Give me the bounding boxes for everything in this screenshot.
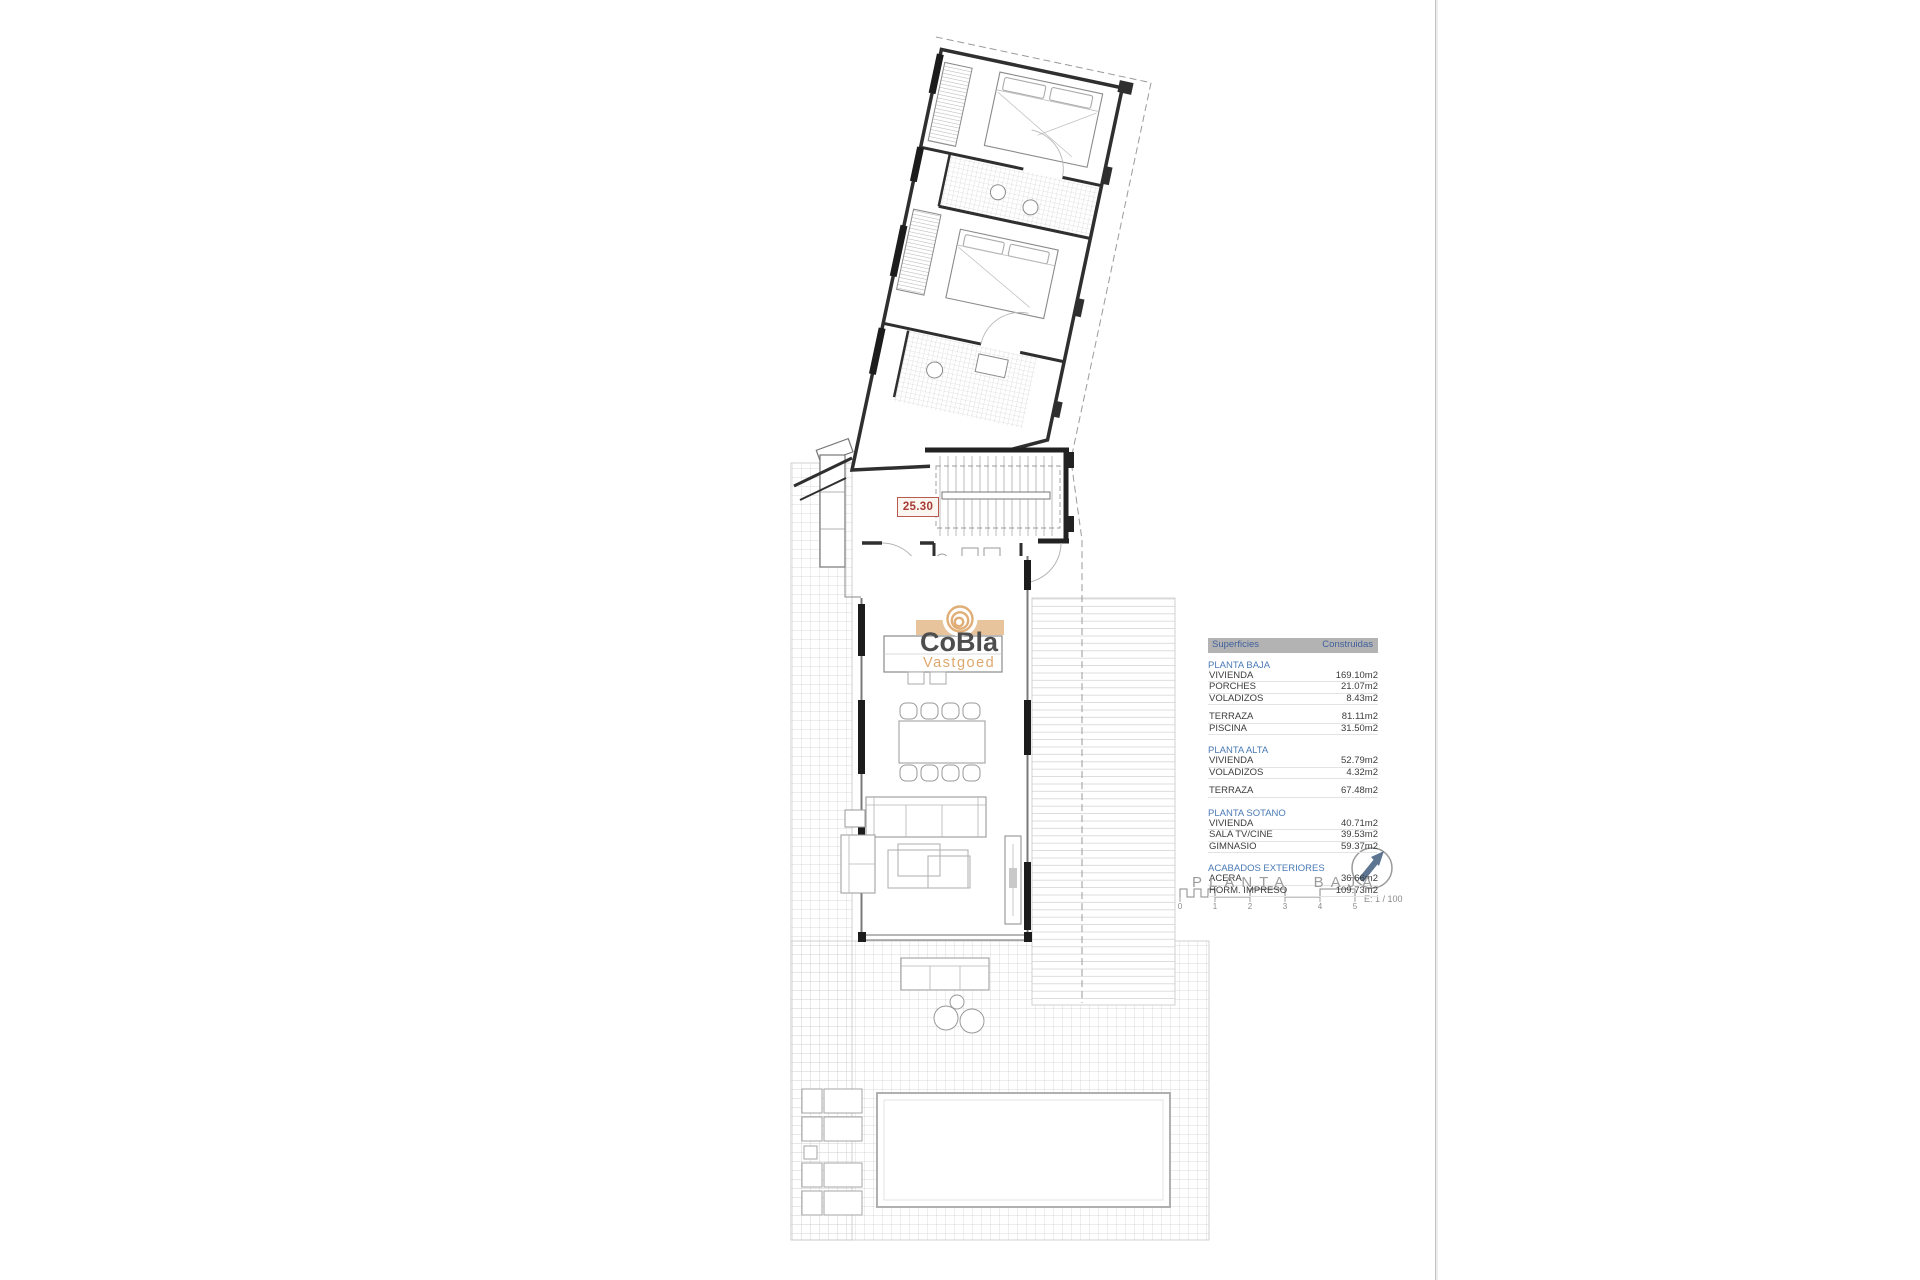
dining-set [899, 703, 985, 781]
row-label: VOLADIZOS [1208, 694, 1263, 705]
row-label: GIMNASIO [1208, 842, 1257, 853]
row-label: VIVIENDA [1208, 819, 1253, 830]
row-label: VOLADIZOS [1208, 768, 1263, 779]
table-row: SALA TV/CINE39.53m2 [1208, 830, 1378, 842]
table-row: VOLADIZOS4.32m2 [1208, 768, 1378, 780]
table-row: VOLADIZOS8.43m2 [1208, 694, 1378, 706]
table-row: TERRAZA81.11m2 [1208, 712, 1378, 724]
pool [877, 1093, 1170, 1207]
table-gap [1208, 798, 1378, 805]
row-value: 81.11m2 [1342, 712, 1378, 723]
table-row: GIMNASIO59.37m2 [1208, 842, 1378, 854]
areas-table-col1: Superficies [1212, 640, 1259, 651]
table-gap [1208, 735, 1378, 742]
table-section-header: PLANTA SOTANO [1208, 808, 1378, 819]
table-row: PISCINA31.50m2 [1208, 724, 1378, 736]
scale-tick-label: 0 [1178, 902, 1183, 911]
table-row: TERRAZA67.48m2 [1208, 786, 1378, 798]
row-value: 52.79m2 [1341, 756, 1378, 767]
cobla-logo: CoBla Vastgoed [900, 598, 1035, 678]
row-label: PISCINA [1208, 724, 1247, 735]
row-label: VIVIENDA [1208, 756, 1253, 767]
logo-subtitle: Vastgoed [923, 655, 995, 671]
tv-unit [1005, 836, 1021, 924]
row-value: 40.71m2 [1341, 819, 1378, 830]
row-value: 67.48m2 [1341, 786, 1378, 797]
scale-tick-label: 1 [1213, 902, 1218, 911]
page-divider-line [1435, 0, 1438, 1280]
row-value: 4.32m2 [1346, 768, 1378, 779]
row-label: PORCHES [1208, 682, 1256, 693]
table-row: VIVIENDA52.79m2 [1208, 756, 1378, 768]
areas-table: Superficies Construidas PLANTA BAJAVIVIE… [1208, 638, 1378, 897]
row-label: TERRAZA [1208, 786, 1253, 797]
row-label: VIVIENDA [1208, 671, 1253, 682]
plan-title: PLANTA BAJA [1192, 874, 1379, 891]
row-value: 169.10m2 [1336, 671, 1378, 682]
row-value: 31.50m2 [1341, 724, 1378, 735]
row-label: TERRAZA [1208, 712, 1253, 723]
areas-table-col2: Construidas [1322, 640, 1373, 651]
scale-tick-label: 4 [1318, 902, 1323, 911]
bedroom-wing [844, 37, 1151, 514]
logo-name: CoBla [920, 627, 999, 657]
table-row: PORCHES21.07m2 [1208, 682, 1378, 694]
table-gap [1208, 853, 1378, 860]
row-label: SALA TV/CINE [1208, 830, 1273, 841]
row-value: 21.07m2 [1341, 682, 1378, 693]
row-value: 59.37m2 [1341, 842, 1378, 853]
scale-tick-label: 5 [1353, 902, 1358, 911]
dimension-label: 25.30 [897, 497, 939, 517]
scale-tick-label: 2 [1248, 902, 1253, 911]
floor-plan-page: 0 1 2 3 4 5 E: 1 / 100 CoBla Vastgoed 25… [0, 0, 1920, 1280]
scale-tick-label: 3 [1283, 902, 1288, 911]
stairs [925, 450, 1074, 543]
areas-table-header: Superficies Construidas [1208, 638, 1378, 653]
stair-handrail [942, 492, 1050, 499]
table-section-header: PLANTA BAJA [1208, 660, 1378, 671]
areas-table-body: PLANTA BAJAVIVIENDA169.10m2PORCHES21.07m… [1208, 660, 1378, 898]
row-value: 8.43m2 [1346, 694, 1378, 705]
row-value: 39.53m2 [1341, 830, 1378, 841]
